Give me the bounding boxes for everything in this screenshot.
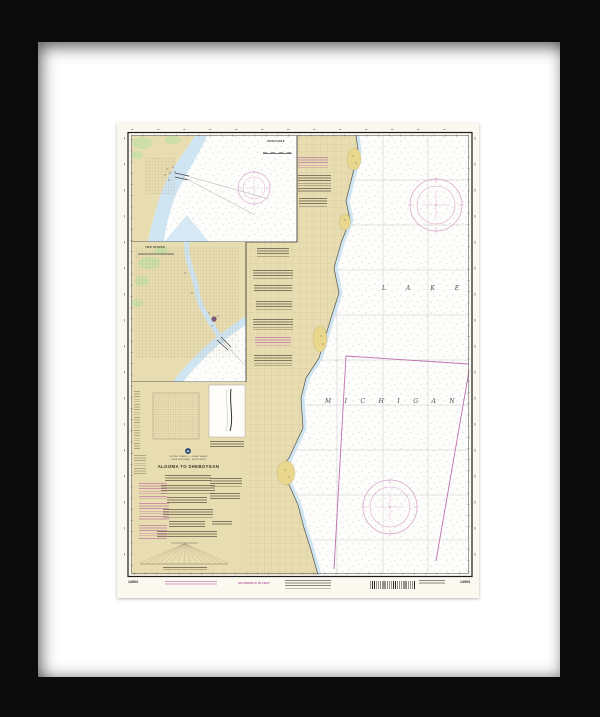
- inset-title-two-rivers: TWO RIVERS: [145, 246, 165, 249]
- bottom-margin-note: [285, 580, 331, 589]
- bottom-margin-note-magenta: [165, 581, 217, 586]
- inset-title-kewaunee: KEWAUNEE: [267, 140, 285, 143]
- chart-note-block: [253, 270, 293, 280]
- harbor-built-up: [211, 316, 216, 321]
- region-line: LAKE MICHIGAN · WISCONSIN: [131, 459, 246, 462]
- fan-caption: [163, 567, 207, 570]
- diagram-caption: [210, 441, 244, 448]
- inset-map-kewaunee: KEWAUNEE: [131, 136, 297, 243]
- chart-title-block: UNITED STATES — GREAT LAKES LAKE MICHIGA…: [131, 456, 246, 469]
- soundings-note: SOUNDINGS IN FEET: [238, 581, 270, 585]
- chart-note-block: [254, 285, 292, 293]
- lake-name-word1: LAKE: [381, 285, 479, 292]
- barcode: [370, 581, 415, 589]
- left-margin-ticks: [124, 137, 126, 573]
- source-diagram-box: [209, 385, 245, 437]
- city-street-grid: [135, 247, 239, 359]
- chart-note-block: [255, 337, 291, 347]
- inset-map-two-rivers: TWO RIVERS: [131, 242, 246, 382]
- chart-note-block: [169, 521, 205, 528]
- chart-note-block: [299, 198, 327, 208]
- right-margin-ticks: [474, 137, 476, 573]
- top-margin-ticks: [131, 129, 469, 131]
- chart-note-block: [253, 319, 293, 331]
- chart-note-block: [210, 493, 240, 501]
- city-street-grid: [145, 157, 175, 195]
- scale-statement: [165, 475, 211, 482]
- chart-title: ALGOMA TO SHEBOYGAN: [131, 464, 246, 469]
- nautical-chart-paper: LAKE MICHIGAN: [117, 123, 479, 598]
- chart-note-block: [157, 531, 217, 537]
- chart-note-block: [257, 248, 289, 257]
- chart-note-block: [298, 175, 331, 193]
- chart-note-block: [256, 301, 292, 311]
- chart-note-block: [298, 157, 328, 169]
- margin-notes-column: [134, 391, 140, 449]
- lake-name-word2: MICHIGAN: [324, 398, 468, 405]
- tide-table: [153, 393, 199, 439]
- chart-note-block: [163, 509, 213, 518]
- chart-number-left: 14903: [128, 580, 138, 584]
- chart-note-block: [254, 355, 292, 367]
- projection-statement: [161, 485, 215, 494]
- framed-chart-photo: LAKE MICHIGAN: [0, 0, 600, 717]
- chart-number-right: 14903: [439, 580, 470, 584]
- chart-note-block: [167, 497, 207, 504]
- chart-note-block: [212, 521, 232, 526]
- noaa-logo-icon: [185, 448, 191, 454]
